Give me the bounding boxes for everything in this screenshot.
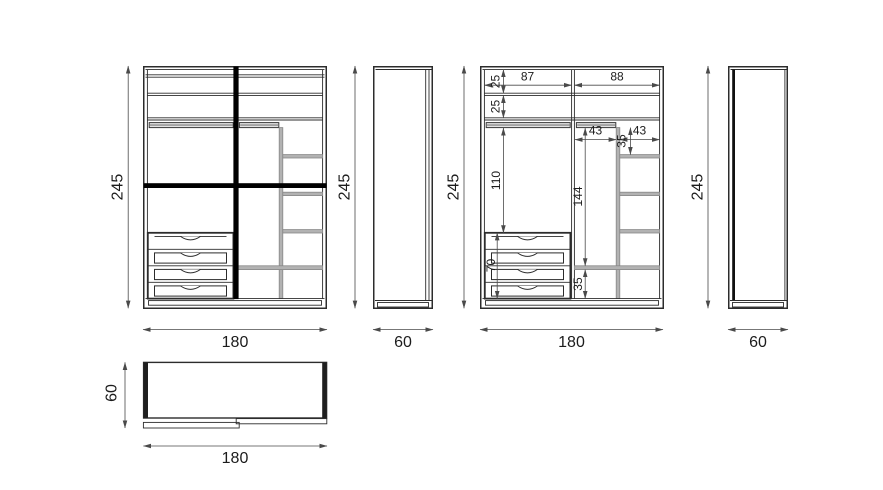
wardrobe-technical-drawing: 25 25 87 88 43 43 35 110 144 70 35 2 <box>0 0 883 490</box>
dim-hanging-space: 110 <box>489 171 503 190</box>
side-view-right-height: 245 <box>690 174 707 201</box>
side-panel-right <box>322 362 326 418</box>
front-view-left <box>144 67 327 309</box>
side-view-left <box>374 67 433 309</box>
dim-second-compartment: 25 <box>489 100 503 114</box>
dim-right-hanging: 144 <box>571 186 585 206</box>
side-view-left-height: 245 <box>337 174 354 201</box>
top-view-width: 180 <box>222 450 249 467</box>
dim-sub-right-width: 43 <box>633 124 647 138</box>
door-stile <box>233 67 238 300</box>
dim-right-section-width: 88 <box>610 70 624 84</box>
top-view <box>143 362 326 428</box>
drawing-svg: 25 25 87 88 43 43 35 110 144 70 35 2 <box>0 0 883 490</box>
front-view-width: 180 <box>222 334 249 351</box>
dim-drawer-unit: 70 <box>484 259 498 273</box>
side-view-right <box>729 67 788 309</box>
dim-top-compartment: 25 <box>489 75 503 89</box>
side-panel-left <box>144 362 148 418</box>
dim-left-section-width: 87 <box>521 70 535 84</box>
door-rail-bar <box>144 183 327 188</box>
front-view-dimensioned-height: 245 <box>446 174 463 201</box>
top-view-depth: 60 <box>104 384 121 402</box>
side-view-left-width: 60 <box>394 334 412 351</box>
dim-top-right-shelf-gap: 35 <box>615 134 629 148</box>
sliding-door-right <box>236 419 327 424</box>
front-view-dimensioned: 25 25 87 88 43 43 35 110 144 70 35 <box>481 67 664 309</box>
side-view-right-width: 60 <box>749 334 767 351</box>
dim-sub-left-width: 43 <box>589 124 603 138</box>
front-view-height: 245 <box>110 174 127 201</box>
front-view-dimensioned-width: 180 <box>558 334 585 351</box>
sliding-door-left <box>143 422 239 428</box>
dim-bottom-compartment: 35 <box>571 277 585 291</box>
door-edge <box>732 70 735 301</box>
